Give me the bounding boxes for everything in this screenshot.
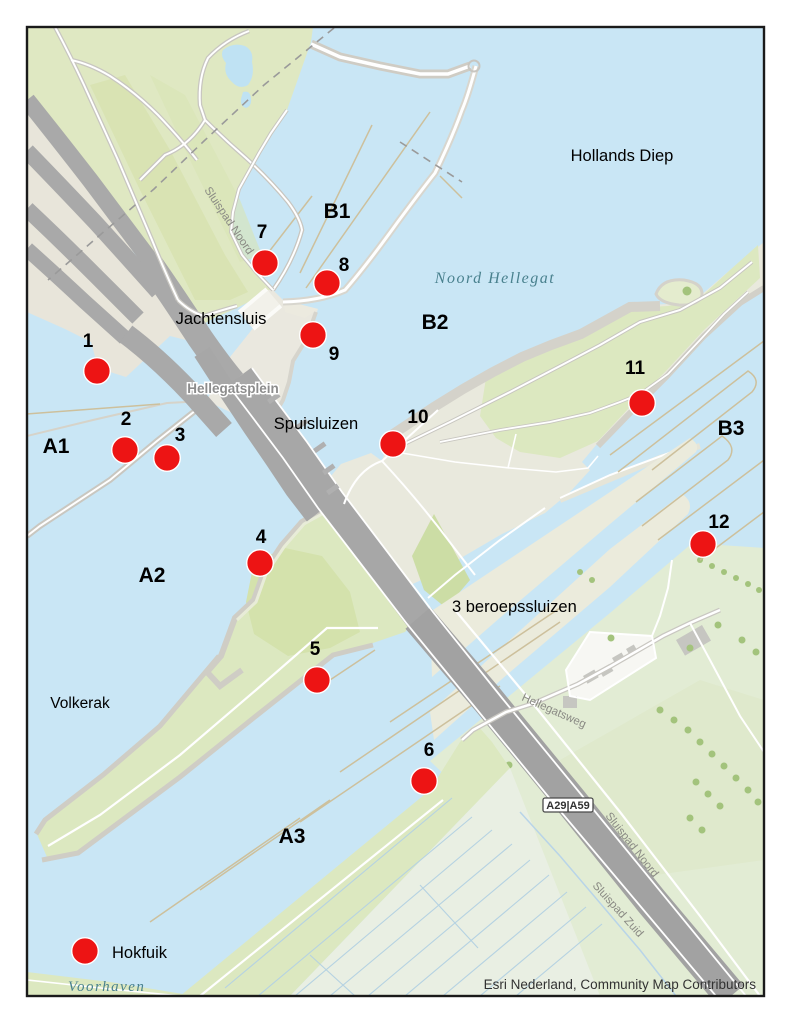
svg-text:A3: A3 (279, 825, 306, 848)
svg-text:Hollands Diep: Hollands Diep (571, 147, 674, 165)
svg-text:10: 10 (407, 407, 428, 428)
svg-text:B1: B1 (324, 200, 351, 223)
svg-text:B2: B2 (422, 311, 449, 334)
svg-text:6: 6 (424, 740, 435, 761)
svg-text:2: 2 (121, 409, 132, 430)
svg-text:8: 8 (339, 255, 350, 276)
svg-text:4: 4 (256, 527, 267, 548)
svg-text:Hellegatsplein: Hellegatsplein (187, 381, 279, 396)
svg-text:3: 3 (175, 425, 186, 446)
svg-text:Volkerak: Volkerak (50, 695, 110, 712)
svg-text:B3: B3 (718, 417, 745, 440)
svg-text:Jachtensluis: Jachtensluis (176, 310, 267, 328)
svg-text:Noord Hellegat: Noord Hellegat (434, 270, 555, 287)
svg-text:Voorhaven: Voorhaven (68, 979, 145, 995)
svg-text:1: 1 (83, 331, 94, 352)
svg-text:A29|A59: A29|A59 (546, 800, 589, 812)
svg-text:12: 12 (708, 512, 729, 533)
svg-text:Spuisluizen: Spuisluizen (274, 415, 358, 433)
svg-text:A2: A2 (139, 564, 166, 587)
svg-text:A1: A1 (43, 435, 70, 458)
svg-text:5: 5 (310, 639, 321, 660)
svg-text:11: 11 (625, 358, 646, 379)
svg-text:Hokfuik: Hokfuik (112, 944, 168, 962)
svg-text:Esri Nederland, Community Map: Esri Nederland, Community Map Contributo… (484, 977, 757, 992)
svg-text:7: 7 (257, 222, 268, 243)
svg-text:9: 9 (329, 344, 340, 365)
svg-text:3 beroepssluizen: 3 beroepssluizen (452, 598, 577, 616)
